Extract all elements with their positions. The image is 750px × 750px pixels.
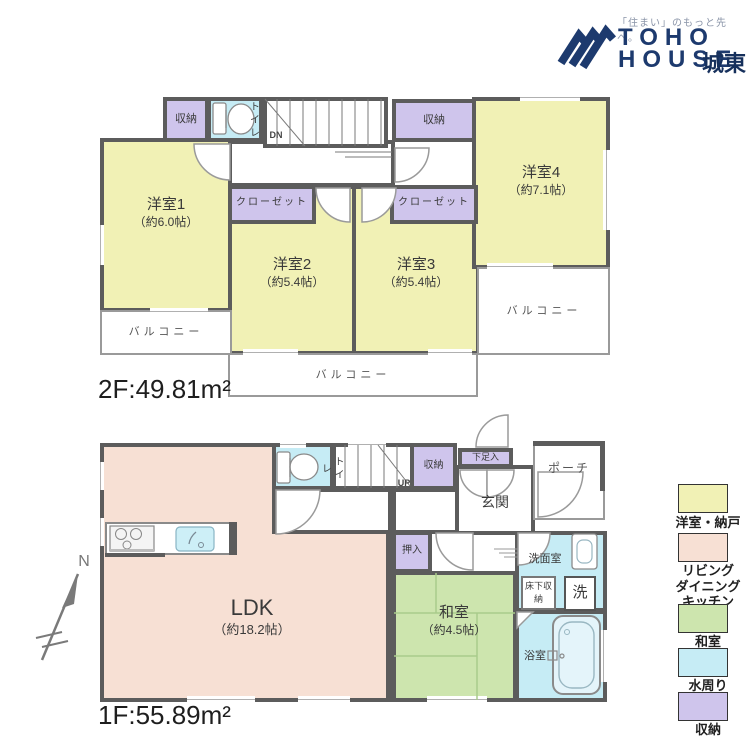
compass-north-label: N — [72, 552, 96, 572]
label-toilet-2f: トイレ — [246, 100, 259, 140]
label-closet-2f-left: クローゼット — [229, 197, 315, 210]
label-ldk: LDK （約18.2帖） — [190, 594, 314, 638]
label-oshiire: 押入 — [393, 545, 431, 558]
toho-logo-icon — [561, 31, 613, 67]
porch-top-wall — [533, 441, 605, 446]
compass-icon — [36, 574, 78, 660]
label-2f-area: 2F:49.81m² — [98, 374, 231, 405]
hall-1f — [272, 488, 392, 534]
label-up: UP — [392, 478, 416, 489]
label-underfloor-storage: 床下収納 — [523, 580, 554, 605]
label-1f-area: 1F:55.89m² — [98, 700, 231, 731]
floorplan-page: 洋室1 （約6.0帖） 洋室2 （約5.4帖） 洋室3 （約5.4帖） 洋室4 … — [0, 0, 750, 750]
label-balcony-2f-left: バルコニー — [106, 326, 226, 340]
label-toilet-1f: トイレ — [318, 450, 343, 488]
kitchen-counter-cap — [229, 522, 237, 555]
porch-right-wall — [600, 441, 605, 491]
legend-swatch-ldk — [678, 533, 728, 562]
label-shoe-box: 下足入 — [459, 452, 512, 463]
legend-swatch-tatami — [678, 604, 728, 633]
legend-label-storage: 収納 — [653, 722, 750, 738]
logo-branch: 城東 — [702, 46, 746, 78]
hall-1f-east — [392, 488, 462, 534]
legend-swatch-western — [678, 484, 728, 513]
label-washitsu: 和室 （約4.5帖） — [395, 604, 513, 638]
label-dn: DN — [264, 130, 288, 141]
label-storage-1f: 収納 — [410, 460, 457, 473]
label-balcony-2f-center: バルコニー — [290, 369, 416, 383]
label-storage-2f-right: 収納 — [392, 114, 476, 128]
porch — [533, 443, 605, 520]
label-yoshitsu2: 洋室2 （約5.4帖） — [234, 256, 350, 290]
label-porch: ポーチ — [538, 461, 600, 476]
kitchen-sill — [105, 553, 165, 557]
label-closet-2f-right: クローゼット — [391, 197, 477, 210]
label-genkan: 玄関 — [463, 494, 527, 512]
label-balcony-2f-right: バルコニー — [484, 305, 604, 319]
legend-label-western: 洋室・納戸 — [653, 515, 750, 531]
label-bathroom: 浴室 — [520, 650, 550, 664]
label-washer: 洗 — [565, 584, 595, 603]
label-yoshitsu3: 洋室3 （約5.4帖） — [358, 256, 474, 290]
label-washroom: 洗面室 — [517, 553, 573, 567]
kitchen-counter — [105, 522, 237, 555]
label-yoshitsu1: 洋室1 （約6.0帖） — [103, 196, 229, 230]
label-yoshitsu4: 洋室4 （約7.1帖） — [478, 164, 604, 198]
legend-label-ldk: リビング ダイニング キッチン — [653, 563, 750, 610]
legend-swatch-storage — [678, 692, 728, 721]
legend-swatch-water — [678, 648, 728, 677]
label-storage-2f-left: 収納 — [164, 113, 208, 127]
